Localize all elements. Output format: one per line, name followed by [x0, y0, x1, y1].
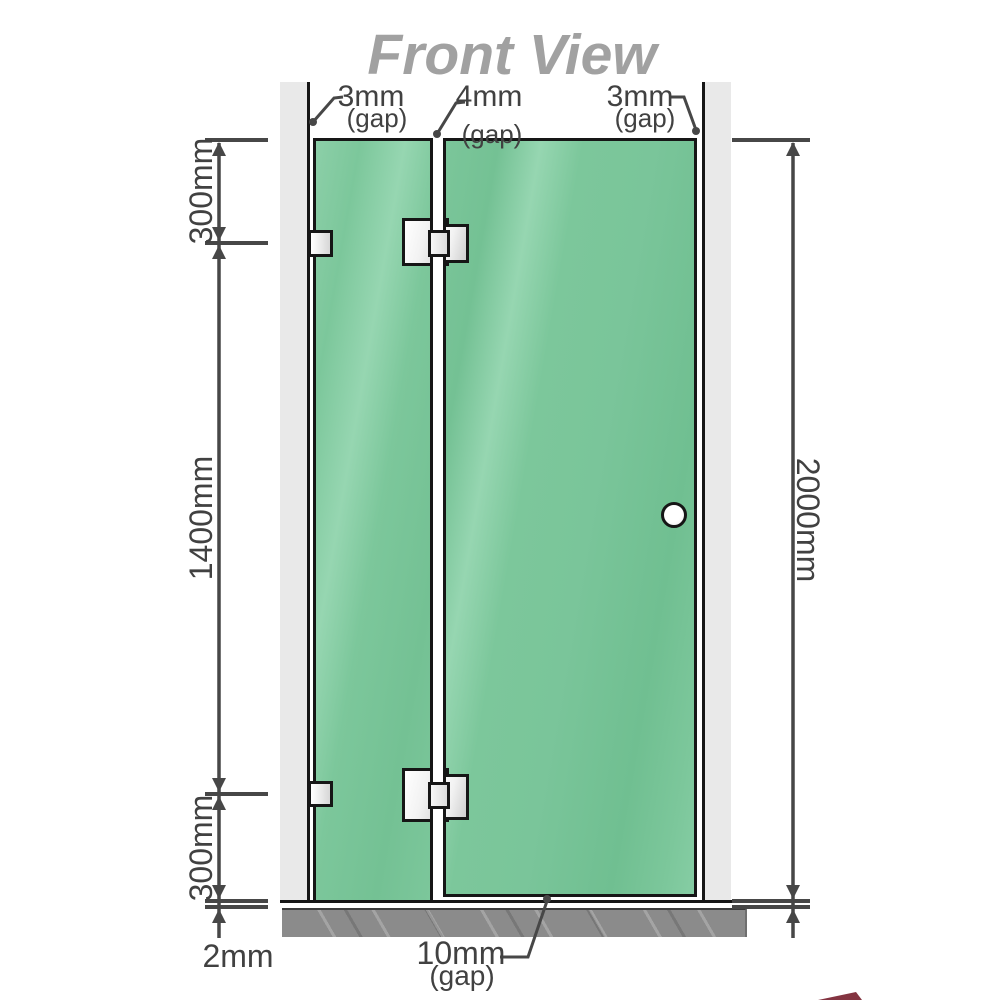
wall-bracket-top [308, 230, 333, 257]
arrow-down [786, 885, 800, 899]
arrow-up [786, 909, 800, 923]
door-knob [661, 502, 687, 528]
diagram-title: Front View [310, 26, 714, 84]
floor-slab [282, 908, 747, 937]
gap-label-bottom-note: (gap) [392, 963, 532, 989]
threshold-line [280, 900, 750, 903]
left-wall [280, 82, 310, 901]
dim-label-2mm: 2mm [168, 940, 308, 972]
gap-label-right-note: (gap) [575, 105, 715, 131]
corner-logo-sliver [818, 992, 862, 1000]
front-view-diagram: Front View [0, 0, 1000, 1000]
door-glass-panel [443, 138, 697, 897]
gap-label-middle-value: 4mm [419, 82, 559, 112]
lower-hinge-clamp [428, 782, 450, 809]
upper-hinge-clamp [428, 230, 450, 257]
wall-bracket-bottom [308, 781, 333, 807]
dim-label-2000mm: 2000mm [792, 450, 824, 590]
dim-label-300mm-bottom: 300mm [185, 778, 217, 918]
right-wall [702, 82, 731, 901]
dim-label-1400mm: 1400mm [185, 448, 217, 588]
gap-label-middle-note: (gap) [422, 121, 562, 147]
arrow-up [786, 142, 800, 156]
dim-label-300mm-top: 300mm [185, 121, 217, 261]
